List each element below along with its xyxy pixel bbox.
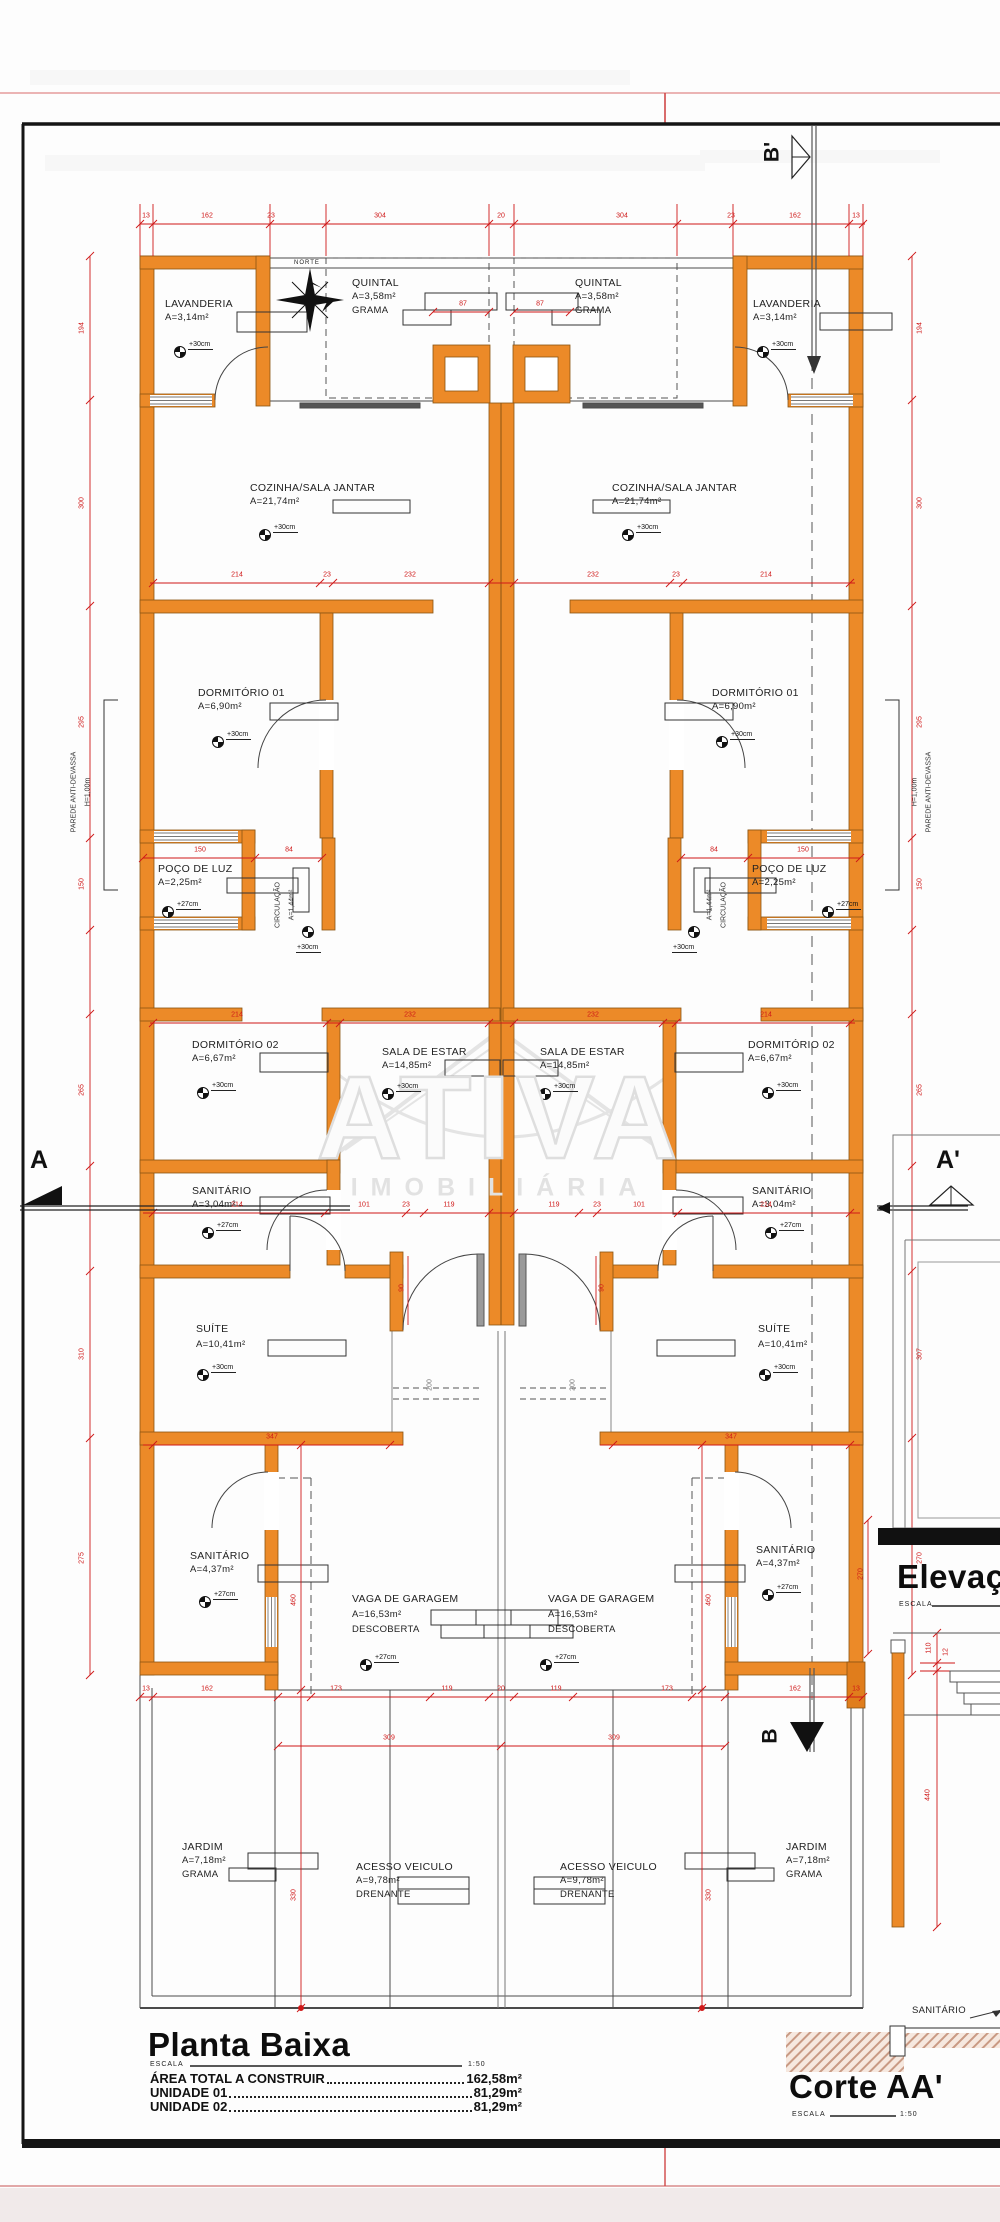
room-sanitario2-right-area: A=4,37m² xyxy=(756,1559,800,1569)
note-parede-h-left: H=1,00m xyxy=(85,778,92,807)
room-circulacao-left: CIRCULAÇÃO xyxy=(275,882,282,928)
dim: 214 xyxy=(760,1012,772,1019)
dim: 307 xyxy=(917,1348,924,1360)
room-suite-right: SUÍTE xyxy=(758,1324,790,1335)
area-total-value: 162,58m² xyxy=(466,2072,522,2086)
dim: 265 xyxy=(917,1084,924,1096)
room-sala-right: SALA DE ESTAR xyxy=(540,1047,625,1058)
room-jardim-right: JARDIM xyxy=(786,1842,827,1853)
dim: 265 xyxy=(79,1084,86,1096)
room-poco-right: POÇO DE LUZ xyxy=(752,864,826,875)
dim: 101 xyxy=(633,1202,645,1209)
room-quintal-left-area: A=3,58m² xyxy=(352,292,396,302)
room-vaga-right: VAGA DE GARAGEM xyxy=(548,1594,654,1605)
room-sanitario1-right-area: A=3,04m² xyxy=(752,1200,796,1210)
dim: 13 xyxy=(852,1686,860,1693)
dim: 232 xyxy=(404,1012,416,1019)
dim: 300 xyxy=(79,497,86,509)
area-total-label: ÁREA TOTAL A CONSTRUIR xyxy=(150,2072,325,2086)
dim: 214 xyxy=(760,1202,772,1209)
room-quintal-right-extra: GRAMA xyxy=(575,306,611,316)
dim: 20 xyxy=(497,213,505,220)
room-cozinha-right: COZINHA/SALA JANTAR xyxy=(612,483,737,494)
dim: 23 xyxy=(727,213,735,220)
note-parede-right: PAREDE ANTI-DEVASSA xyxy=(926,752,933,833)
dim: 13 xyxy=(142,1686,150,1693)
dim: 119 xyxy=(443,1202,454,1209)
room-suite-right-area: A=10,41m² xyxy=(758,1340,807,1350)
unit2-value: 81,29m² xyxy=(474,2100,522,2114)
dim: 13 xyxy=(142,213,150,220)
section-marker-b: B xyxy=(760,1728,781,1743)
unit2-row: UNIDADE 02 81,29m² xyxy=(150,2100,522,2114)
dim: 440 xyxy=(925,1789,932,1801)
room-jardim-right-extra: GRAMA xyxy=(786,1870,822,1880)
room-sala-left-area: A=14,85m² xyxy=(382,1061,431,1071)
room-sala-right-area: A=14,85m² xyxy=(540,1061,589,1071)
room-lavanderia-left: LAVANDERIA xyxy=(165,299,233,310)
dim: 119 xyxy=(441,1686,452,1693)
plan-scale-value: 1:50 xyxy=(468,2061,486,2068)
dim: 23 xyxy=(402,1202,410,1209)
dim: 101 xyxy=(358,1202,370,1209)
room-lavanderia-right-area: A=3,14m² xyxy=(753,313,797,323)
dim: 232 xyxy=(404,572,416,579)
level-dormitorio2-left: +30cm xyxy=(211,1082,236,1091)
dim: 330 xyxy=(291,1889,298,1901)
level-vaga-left: +27cm xyxy=(374,1654,399,1663)
dim: 20 xyxy=(497,1686,505,1693)
dim: 295 xyxy=(917,716,924,728)
room-sanitario1-left-area: A=3,04m² xyxy=(192,1200,236,1210)
watermark-subtext: IMOBILIÁRIA xyxy=(351,1176,650,1201)
room-vaga-right-extra: DESCOBERTA xyxy=(548,1625,616,1635)
dim: 13 xyxy=(852,213,860,220)
level-poco-right: +27cm xyxy=(836,901,861,910)
dim: 200 xyxy=(427,1379,434,1391)
note-parede-left: PAREDE ANTI-DEVASSA xyxy=(71,752,78,833)
dim: 23 xyxy=(267,213,275,220)
dim: 200 xyxy=(570,1379,577,1391)
section-scale-value: 1:50 xyxy=(900,2111,918,2118)
room-poco-left-area: A=2,25m² xyxy=(158,878,202,888)
dim: 194 xyxy=(917,322,924,334)
room-circulacao-left-area: A=1,44m² xyxy=(289,890,296,921)
room-dormitorio1-left: DORMITÓRIO 01 xyxy=(198,688,285,699)
room-poco-left: POÇO DE LUZ xyxy=(158,864,232,875)
room-acesso-left: ACESSO VEICULO xyxy=(356,1862,453,1873)
level-dormitorio1-right: +30cm xyxy=(730,731,755,740)
level-circulacao-left: +30cm xyxy=(296,944,321,953)
dim: 23 xyxy=(323,572,331,579)
watermark-text: ATIVA xyxy=(317,1059,683,1177)
room-dormitorio1-left-area: A=6,90m² xyxy=(198,702,242,712)
room-cozinha-right-area: A=21,74m² xyxy=(612,497,661,507)
dim: 232 xyxy=(587,1012,599,1019)
floor-plan-sheet: ATIVA IMOBILIÁRIA NORTE LAVANDERIA A=3,1… xyxy=(0,0,1000,2222)
unit1-label: UNIDADE 01 xyxy=(150,2086,227,2100)
level-lavanderia-right: +30cm xyxy=(771,341,796,350)
room-dormitorio2-right-area: A=6,67m² xyxy=(748,1054,792,1064)
room-vaga-right-area: A=16,53m² xyxy=(548,1610,597,1620)
dim: 347 xyxy=(725,1434,737,1441)
dim: 347 xyxy=(266,1434,278,1441)
dim: 162 xyxy=(789,1686,801,1693)
level-sanitario1-left: +27cm xyxy=(216,1222,241,1231)
dim: 162 xyxy=(201,213,213,220)
dim: 214 xyxy=(231,1202,243,1209)
elevation-title: Elevação xyxy=(897,1560,1000,1593)
dim: 84 xyxy=(710,847,718,854)
room-sanitario1-right: SANITÁRIO xyxy=(752,1186,811,1197)
room-circulacao-right-area: A=1,44m² xyxy=(707,890,714,921)
dim: 300 xyxy=(917,497,924,509)
dim: 150 xyxy=(917,878,924,890)
dim: 87 xyxy=(459,301,467,308)
dim: 304 xyxy=(616,213,628,220)
room-vaga-left-area: A=16,53m² xyxy=(352,1610,401,1620)
room-lavanderia-left-area: A=3,14m² xyxy=(165,313,209,323)
room-acesso-left-extra: DRENANTE xyxy=(356,1890,411,1900)
dim: 304 xyxy=(374,213,386,220)
dim: 460 xyxy=(706,1594,713,1606)
level-sanitario2-left: +27cm xyxy=(213,1591,238,1600)
dim: 460 xyxy=(291,1594,298,1606)
dim: 150 xyxy=(194,847,206,854)
unit1-value: 81,29m² xyxy=(474,2086,522,2100)
plan-title: Planta Baixa xyxy=(148,2028,350,2061)
room-jardim-left-extra: GRAMA xyxy=(182,1870,218,1880)
dim: 90 xyxy=(399,1284,406,1292)
dim: 173 xyxy=(330,1686,342,1693)
level-sala-left: +30cm xyxy=(396,1083,421,1092)
room-quintal-right: QUINTAL xyxy=(575,278,622,289)
dim: 270 xyxy=(858,1568,865,1580)
level-sanitario1-right: +27cm xyxy=(779,1222,804,1231)
level-poco-left: +27cm xyxy=(176,901,201,910)
walls xyxy=(140,256,865,1708)
dim: 295 xyxy=(79,716,86,728)
room-jardim-left: JARDIM xyxy=(182,1842,223,1853)
room-sala-left: SALA DE ESTAR xyxy=(382,1047,467,1058)
level-circulacao-right: +30cm xyxy=(672,944,697,953)
dim: 119 xyxy=(550,1686,561,1693)
level-dormitorio2-right: +30cm xyxy=(776,1082,801,1091)
room-dormitorio1-right: DORMITÓRIO 01 xyxy=(712,688,799,699)
dim: 150 xyxy=(797,847,809,854)
dim: 330 xyxy=(706,1889,713,1901)
dim: 23 xyxy=(672,572,680,579)
room-acesso-left-area: A=9,78m² xyxy=(356,1876,400,1886)
compass-icon xyxy=(276,268,344,332)
room-jardim-right-area: A=7,18m² xyxy=(786,1856,830,1866)
leader-dots xyxy=(229,2096,471,2098)
dim: 214 xyxy=(231,1012,243,1019)
room-sanitario2-right: SANITÁRIO xyxy=(756,1545,815,1556)
dim: 119 xyxy=(548,1202,559,1209)
level-sala-right: +30cm xyxy=(553,1083,578,1092)
dim: 84 xyxy=(285,847,293,854)
room-poco-right-area: A=2,25m² xyxy=(752,878,796,888)
section-marker-b-prime: B' xyxy=(762,142,783,162)
room-vaga-left-extra: DESCOBERTA xyxy=(352,1625,420,1635)
dim: 194 xyxy=(79,322,86,334)
level-cozinha-left: +30cm xyxy=(273,524,298,533)
dim: 310 xyxy=(79,1348,86,1360)
level-lavanderia-left: +30cm xyxy=(188,341,213,350)
section-marker-a: A xyxy=(30,1148,48,1173)
room-acesso-right: ACESSO VEICULO xyxy=(560,1862,657,1873)
unit1-row: UNIDADE 01 81,29m² xyxy=(150,2086,522,2100)
dim: 309 xyxy=(383,1735,395,1742)
dim: 173 xyxy=(661,1686,673,1693)
room-acesso-right-extra: DRENANTE xyxy=(560,1890,615,1900)
room-dormitorio2-left: DORMITÓRIO 02 xyxy=(192,1040,279,1051)
room-suite-left: SUÍTE xyxy=(196,1324,228,1335)
room-dormitorio1-right-area: A=6,90m² xyxy=(712,702,756,712)
room-quintal-left-extra: GRAMA xyxy=(352,306,388,316)
note-parede-h-right: H=1,00m xyxy=(912,778,919,807)
room-quintal-left: QUINTAL xyxy=(352,278,399,289)
leader-dots xyxy=(327,2082,465,2084)
area-total-row: ÁREA TOTAL A CONSTRUIR 162,58m² xyxy=(150,2072,522,2086)
level-suite-right: +30cm xyxy=(773,1364,798,1373)
elevation-scale-label: ESCALA xyxy=(899,1601,933,1608)
room-acesso-right-area: A=9,78m² xyxy=(560,1876,604,1886)
dim: 162 xyxy=(201,1686,213,1693)
dim: 214 xyxy=(231,572,243,579)
room-dormitorio2-left-area: A=6,67m² xyxy=(192,1054,236,1064)
room-cozinha-left: COZINHA/SALA JANTAR xyxy=(250,483,375,494)
north-label: NORTE xyxy=(294,260,320,266)
section-scale-label: ESCALA xyxy=(792,2111,826,2118)
room-sanitario2-left-area: A=4,37m² xyxy=(190,1565,234,1575)
section-marker-a-prime: A' xyxy=(936,1148,960,1173)
room-jardim-left-area: A=7,18m² xyxy=(182,1856,226,1866)
level-sanitario2-right: +27cm xyxy=(776,1584,801,1593)
unit2-label: UNIDADE 02 xyxy=(150,2100,227,2114)
plan-scale-label: ESCALA xyxy=(150,2061,184,2068)
dim: 162 xyxy=(789,213,801,220)
dim: 150 xyxy=(79,878,86,890)
dim: 23 xyxy=(593,1202,601,1209)
dim: 275 xyxy=(79,1552,86,1564)
level-dormitorio1-left: +30cm xyxy=(226,731,251,740)
room-quintal-right-area: A=3,58m² xyxy=(575,292,619,302)
dim: 110 xyxy=(926,1642,933,1653)
level-vaga-right: +27cm xyxy=(554,1654,579,1663)
dim: 309 xyxy=(608,1735,620,1742)
dim: 90 xyxy=(599,1284,606,1292)
room-sanitario2-left: SANITÁRIO xyxy=(190,1551,249,1562)
dim: 214 xyxy=(760,572,772,579)
level-suite-left: +30cm xyxy=(211,1364,236,1373)
room-lavanderia-right: LAVANDERIA xyxy=(753,299,821,310)
corte-sanitario-label: SANITÁRIO xyxy=(912,2006,966,2016)
room-suite-left-area: A=10,41m² xyxy=(196,1340,245,1350)
room-cozinha-left-area: A=21,74m² xyxy=(250,497,299,507)
room-dormitorio2-right: DORMITÓRIO 02 xyxy=(748,1040,835,1051)
dim: 12 xyxy=(943,1648,950,1656)
room-circulacao-right: CIRCULAÇÃO xyxy=(721,882,728,928)
leader-dots xyxy=(229,2110,471,2112)
section-title: Corte AA' xyxy=(789,2070,943,2103)
room-vaga-left: VAGA DE GARAGEM xyxy=(352,1594,458,1605)
level-cozinha-right: +30cm xyxy=(636,524,661,533)
dim: 232 xyxy=(587,572,599,579)
room-sanitario1-left: SANITÁRIO xyxy=(192,1186,251,1197)
dim: 87 xyxy=(536,301,544,308)
